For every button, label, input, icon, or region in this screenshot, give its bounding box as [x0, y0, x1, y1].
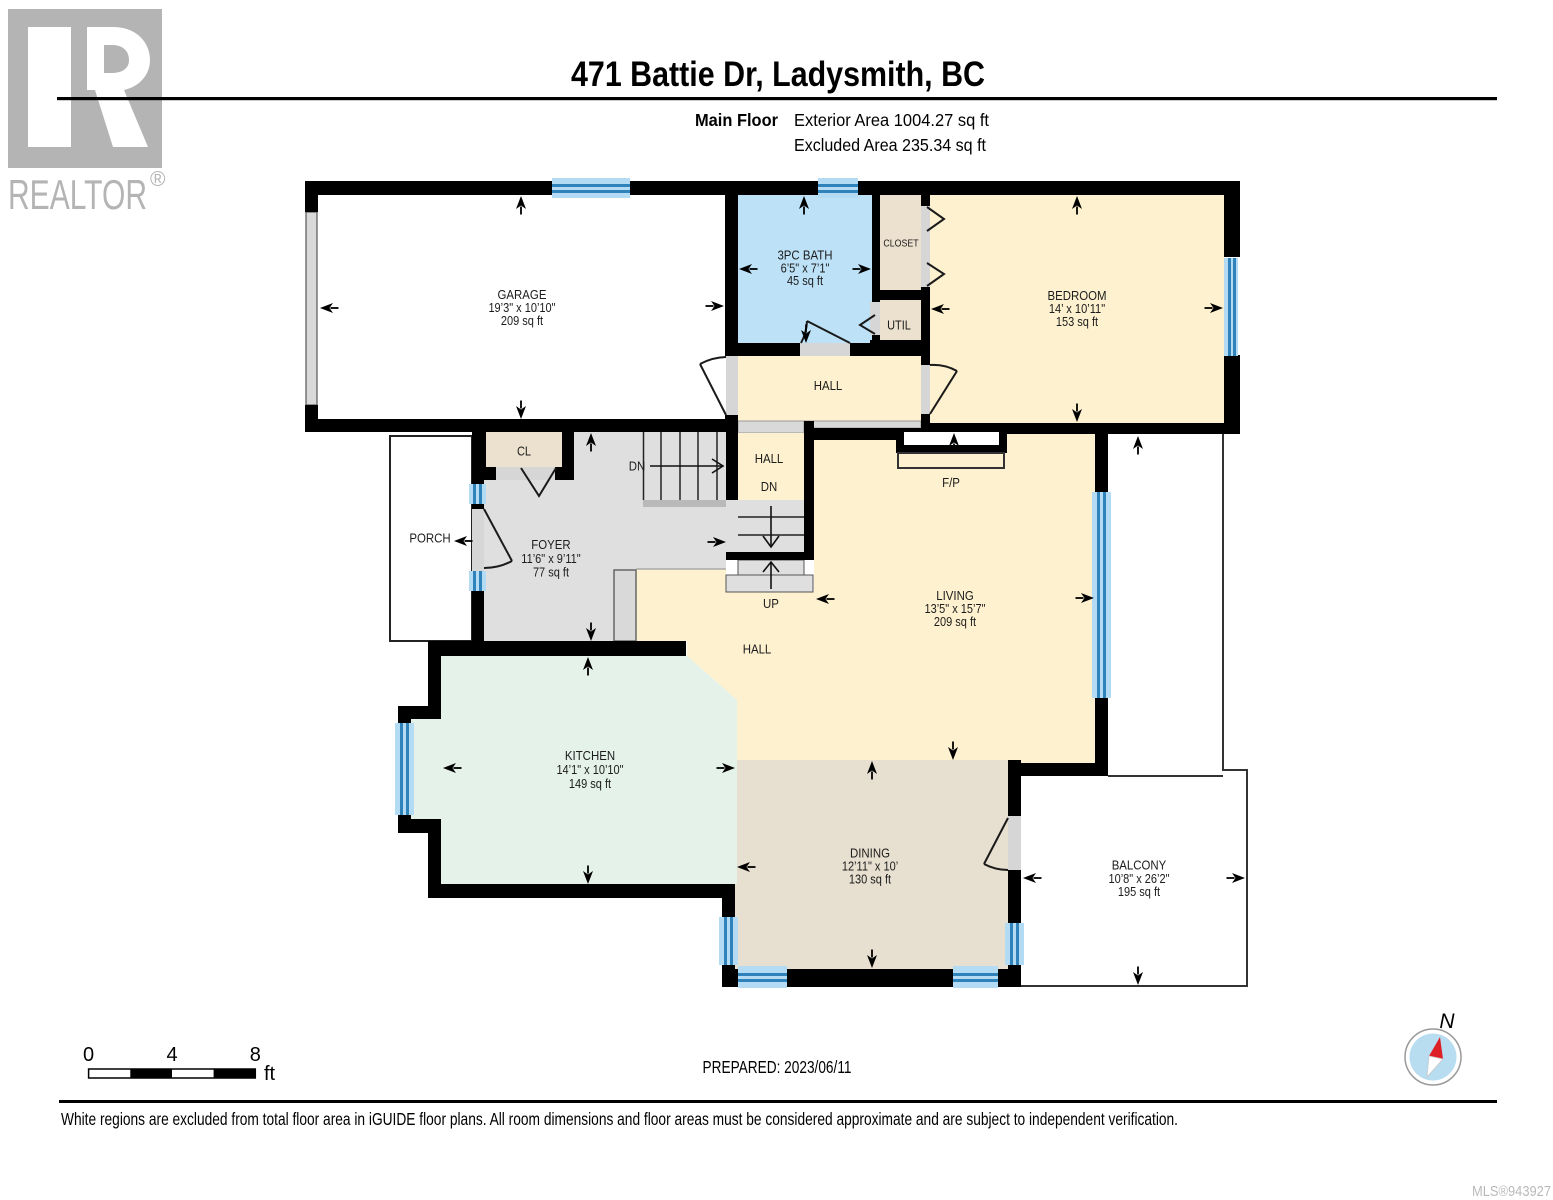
svg-text:BALCONY: BALCONY: [1112, 858, 1167, 873]
svg-text:REALTOR: REALTOR: [8, 171, 147, 218]
svg-text:45 sq ft: 45 sq ft: [787, 274, 824, 288]
svg-text:BEDROOM: BEDROOM: [1047, 288, 1106, 303]
svg-text:HALL: HALL: [743, 642, 772, 657]
svg-text:471 Battie Dr, Ladysmith, BC: 471 Battie Dr, Ladysmith, BC: [571, 55, 985, 94]
svg-text:PREPARED: 2023/06/11: PREPARED: 2023/06/11: [703, 1057, 852, 1077]
svg-text:209 sq ft: 209 sq ft: [501, 314, 544, 328]
svg-text:DINING: DINING: [850, 846, 890, 861]
svg-text:LIVING: LIVING: [936, 588, 974, 603]
svg-text:14’ x 10’11": 14’ x 10’11": [1049, 302, 1105, 316]
svg-text:N: N: [1439, 1010, 1455, 1033]
svg-text:149 sq ft: 149 sq ft: [569, 777, 612, 791]
svg-text:PORCH: PORCH: [409, 531, 450, 546]
svg-text:0: 0: [83, 1044, 94, 1066]
svg-text:130 sq ft: 130 sq ft: [849, 873, 892, 887]
svg-text:GARAGE: GARAGE: [498, 287, 547, 302]
svg-text:DN: DN: [629, 459, 646, 474]
svg-text:CL: CL: [517, 445, 531, 459]
svg-text:4: 4: [166, 1044, 177, 1066]
svg-text:77 sq ft: 77 sq ft: [533, 566, 570, 580]
svg-text:13’5" x 15’7": 13’5" x 15’7": [925, 602, 986, 616]
svg-text:®: ®: [150, 168, 166, 191]
svg-text:HALL: HALL: [814, 378, 843, 393]
svg-text:14’1" x 10’10": 14’1" x 10’10": [556, 763, 623, 777]
svg-text:FOYER: FOYER: [531, 537, 570, 552]
svg-text:195 sq ft: 195 sq ft: [1118, 885, 1161, 899]
svg-text:209 sq ft: 209 sq ft: [934, 615, 977, 629]
svg-text:White regions are excluded fro: White regions are excluded from total fl…: [61, 1109, 1178, 1129]
svg-text:12’11" x 10’: 12’11" x 10’: [842, 860, 898, 874]
svg-text:Excluded Area 235.34 sq ft: Excluded Area 235.34 sq ft: [794, 135, 986, 155]
svg-text:10’8" x 26’2": 10’8" x 26’2": [1109, 872, 1170, 886]
svg-text:153 sq ft: 153 sq ft: [1056, 315, 1099, 329]
svg-text:8: 8: [250, 1044, 261, 1066]
svg-text:11’6" x 9’11": 11’6" x 9’11": [521, 552, 580, 566]
svg-text:MLS®943927: MLS®943927: [1472, 1184, 1551, 1200]
svg-text:19’3" x 10’10": 19’3" x 10’10": [488, 301, 555, 315]
svg-text:3PC BATH: 3PC BATH: [777, 248, 832, 263]
svg-text:KITCHEN: KITCHEN: [565, 748, 615, 763]
svg-text:UP: UP: [763, 596, 779, 611]
svg-text:F/P: F/P: [942, 475, 960, 490]
svg-text:Main Floor: Main Floor: [695, 110, 778, 130]
svg-text:CLOSET: CLOSET: [883, 239, 918, 250]
svg-text:ft: ft: [264, 1063, 276, 1085]
svg-text:DN: DN: [761, 479, 778, 494]
svg-text:Exterior Area 1004.27 sq ft: Exterior Area 1004.27 sq ft: [794, 110, 989, 130]
svg-text:HALL: HALL: [755, 451, 784, 466]
svg-text:UTIL: UTIL: [887, 319, 911, 333]
